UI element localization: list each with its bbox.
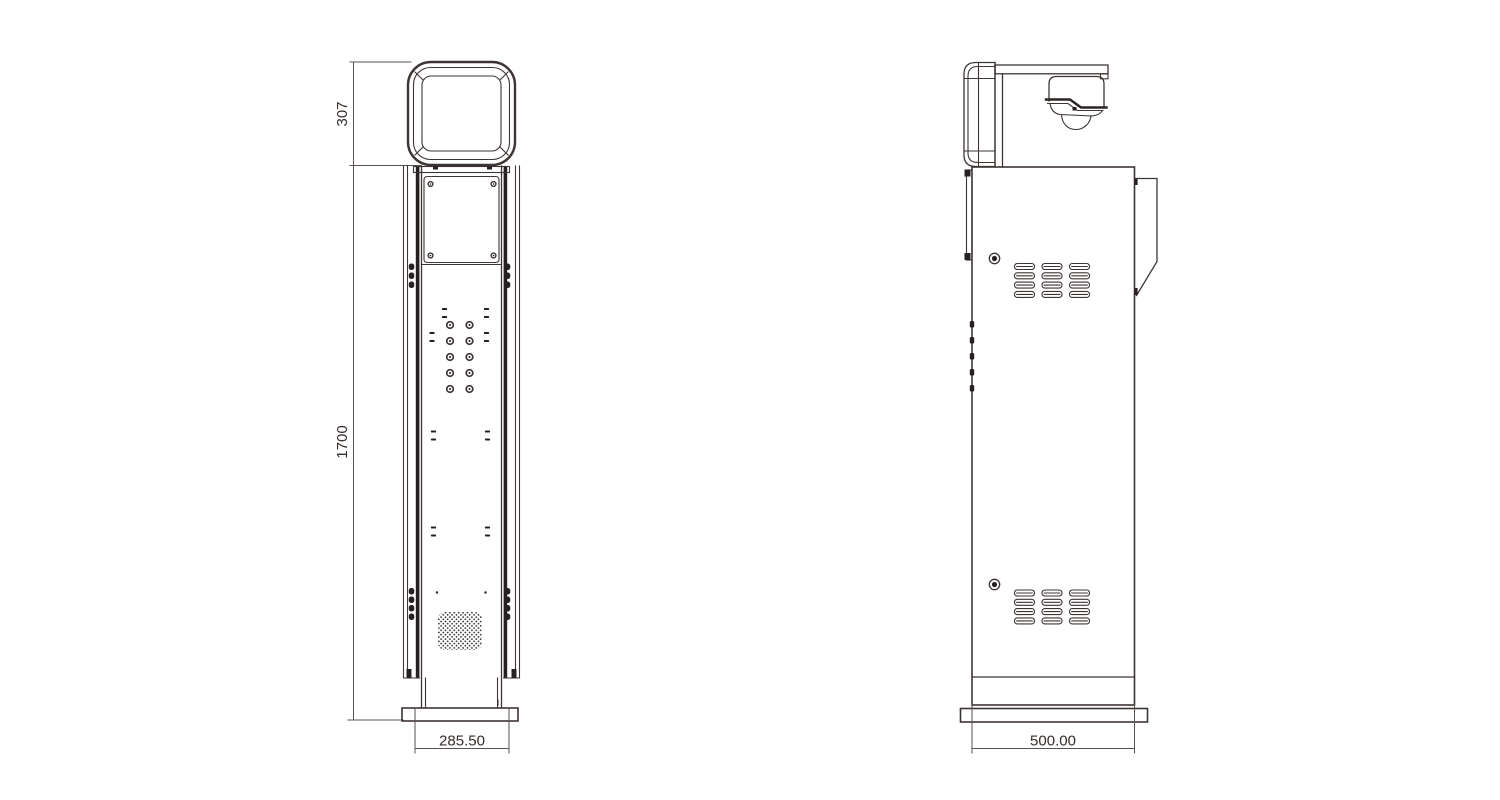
speaker-grille [438,612,482,650]
top-cap-plate [414,167,510,173]
display-head-profile [964,63,995,167]
dimension-base-depth: 500.00 [972,705,1135,753]
front-base-plate [402,708,518,721]
dimension-label-head-height: 307 [334,101,351,126]
front-view: 307 1700 [334,62,520,753]
camera-dome [1062,115,1092,130]
hinge-strip [965,170,973,261]
front-column [402,166,520,721]
camera-housing [1049,77,1104,107]
display-head-inner-bezel [414,68,510,160]
technical-drawing-sheet: 307 1700 [0,0,1500,800]
dimension-base-width: 285.50 [415,709,509,753]
dome-camera [1046,77,1107,130]
lower-vent-grille [1015,590,1090,624]
access-panel [422,177,502,265]
dimension-label-base-depth: 500.00 [1030,733,1076,750]
mounting-hole-pattern [447,322,473,393]
dimension-label-base-width: 285.50 [439,733,485,750]
side-base-plate [961,709,1148,723]
upper-lock-knob [989,253,999,263]
upper-vent-grille [1015,264,1090,298]
kiosk-dimension-drawing: 307 1700 [0,0,1500,800]
display-head-outer-bezel [408,62,515,165]
display-screen [422,76,501,151]
cabinet-body [961,167,1158,722]
dimension-label-column-height: 1700 [334,425,351,458]
fastener-slots [429,308,490,594]
lower-lock-knob [989,579,999,589]
bezel-corner-seams [415,72,508,155]
screw [491,182,496,187]
rear-fin [1135,179,1158,296]
side-view: 500.00 [961,63,1158,754]
display-head [408,62,515,165]
dimension-column-height: 1700 [334,166,403,721]
screw [428,253,433,258]
screw [428,182,433,187]
screw [491,253,496,258]
arm-bar [995,65,1108,74]
upper-hinge-bumps [409,264,511,289]
